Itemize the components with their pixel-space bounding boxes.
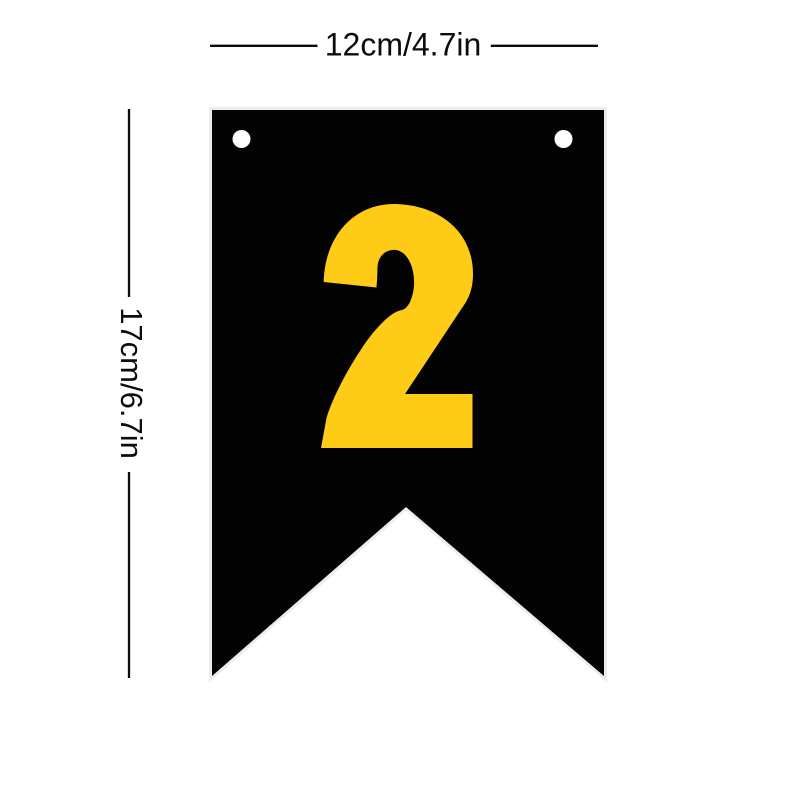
svg-text:17cm/6.7in: 17cm/6.7in [114,307,149,459]
svg-text:12cm/4.7in: 12cm/4.7in [325,27,482,63]
